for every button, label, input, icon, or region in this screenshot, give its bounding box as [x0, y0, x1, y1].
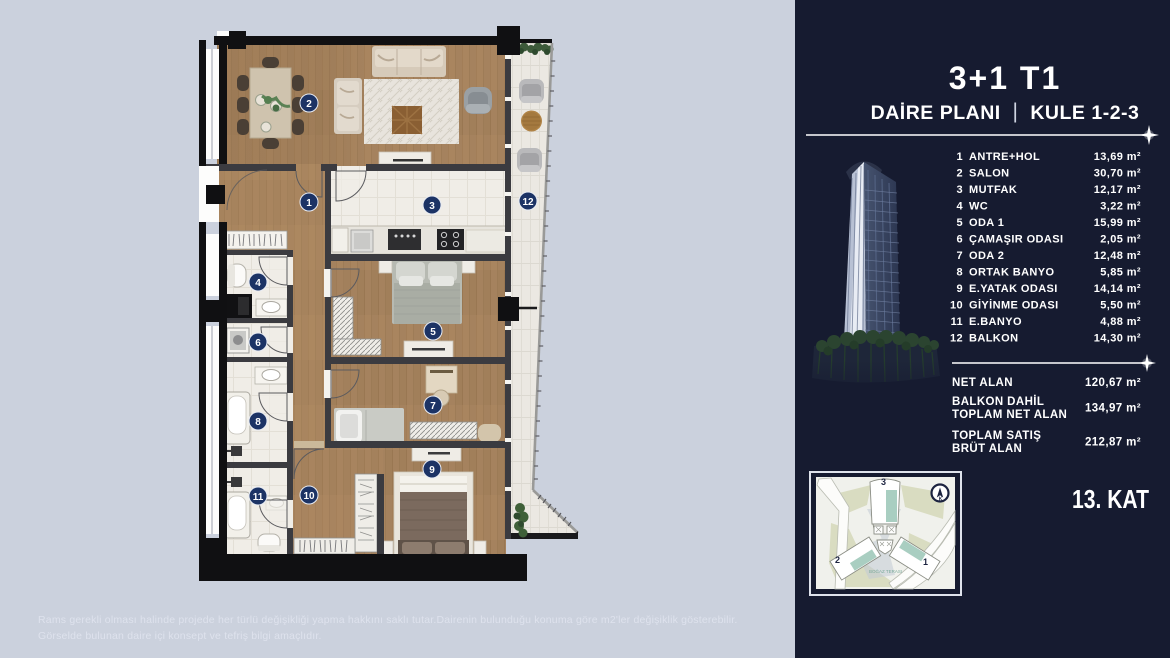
svg-text:4: 4 [956, 201, 963, 213]
svg-text:6: 6 [956, 234, 963, 246]
svg-text:12: 12 [522, 197, 534, 208]
svg-text:ODA 1: ODA 1 [969, 217, 1004, 229]
svg-text:3: 3 [956, 184, 963, 196]
svg-text:3: 3 [881, 477, 886, 487]
svg-text:2: 2 [835, 555, 840, 565]
svg-text:BALKON: BALKON [969, 333, 1018, 345]
svg-text:5,50 m²: 5,50 m² [1100, 300, 1141, 312]
svg-text:7: 7 [430, 401, 436, 412]
svg-text:BALKON DAHİL: BALKON DAHİL [952, 395, 1044, 408]
svg-text:120,67 m²: 120,67 m² [1085, 377, 1141, 389]
svg-text:1: 1 [923, 557, 928, 567]
svg-text:SALON: SALON [969, 168, 1010, 180]
svg-text:134,97 m²: 134,97 m² [1085, 403, 1141, 415]
svg-text:2: 2 [306, 99, 312, 110]
svg-text:13. KAT: 13. KAT [1072, 484, 1149, 514]
svg-text:5,85 m²: 5,85 m² [1100, 267, 1141, 279]
svg-text:10: 10 [303, 491, 315, 502]
svg-text:12,48 m²: 12,48 m² [1094, 250, 1141, 262]
svg-text:3,22 m²: 3,22 m² [1100, 201, 1141, 213]
svg-text:NET ALAN: NET ALAN [952, 377, 1013, 389]
svg-text:11: 11 [951, 316, 963, 328]
svg-text:3: 3 [429, 201, 435, 212]
svg-text:ÇAMAŞIR ODASI: ÇAMAŞIR ODASI [969, 234, 1063, 246]
svg-text:BRÜT ALAN: BRÜT ALAN [952, 442, 1022, 455]
svg-text:ANTRE+HOL: ANTRE+HOL [969, 151, 1040, 163]
svg-text:30,70 m²: 30,70 m² [1094, 168, 1141, 180]
svg-text:TOPLAM SATIŞ: TOPLAM SATIŞ [952, 430, 1041, 442]
svg-text:ORTAK BANYO: ORTAK BANYO [969, 267, 1055, 279]
svg-text:1: 1 [956, 151, 963, 163]
svg-text:4: 4 [255, 278, 261, 289]
svg-text:1: 1 [306, 198, 312, 209]
svg-text:BOĞAZ TERASI: BOĞAZ TERASI [869, 568, 902, 574]
svg-text:4,88 m²: 4,88 m² [1100, 316, 1141, 328]
svg-text:212,87 m²: 212,87 m² [1085, 437, 1141, 449]
svg-text:8: 8 [255, 417, 261, 428]
svg-text:WC: WC [969, 201, 988, 213]
svg-text:2: 2 [956, 168, 963, 180]
svg-text:GİYİNME ODASI: GİYİNME ODASI [969, 299, 1059, 312]
svg-text:E.BANYO: E.BANYO [969, 316, 1022, 328]
svg-text:15,99 m²: 15,99 m² [1094, 217, 1141, 229]
svg-text:14,30 m²: 14,30 m² [1094, 333, 1141, 345]
svg-text:5: 5 [956, 217, 963, 229]
svg-text:5: 5 [430, 327, 436, 338]
svg-text:9: 9 [429, 465, 435, 476]
svg-text:2,05 m²: 2,05 m² [1100, 234, 1141, 246]
svg-text:10: 10 [950, 300, 963, 312]
svg-text:9: 9 [956, 283, 963, 295]
svg-text:MUTFAK: MUTFAK [969, 184, 1017, 196]
svg-text:11: 11 [253, 492, 264, 503]
svg-text:K: K [939, 497, 943, 503]
svg-text:E.YATAK ODASI: E.YATAK ODASI [969, 283, 1058, 295]
svg-text:12,17 m²: 12,17 m² [1094, 184, 1141, 196]
svg-text:14,14 m²: 14,14 m² [1094, 283, 1141, 295]
svg-text:ODA 2: ODA 2 [969, 250, 1004, 262]
svg-text:8: 8 [956, 267, 963, 279]
svg-text:7: 7 [956, 250, 963, 262]
svg-text:6: 6 [255, 338, 261, 349]
svg-text:13,69 m²: 13,69 m² [1094, 151, 1141, 163]
svg-text:TOPLAM NET ALAN: TOPLAM NET ALAN [952, 409, 1067, 421]
svg-text:12: 12 [950, 333, 963, 345]
